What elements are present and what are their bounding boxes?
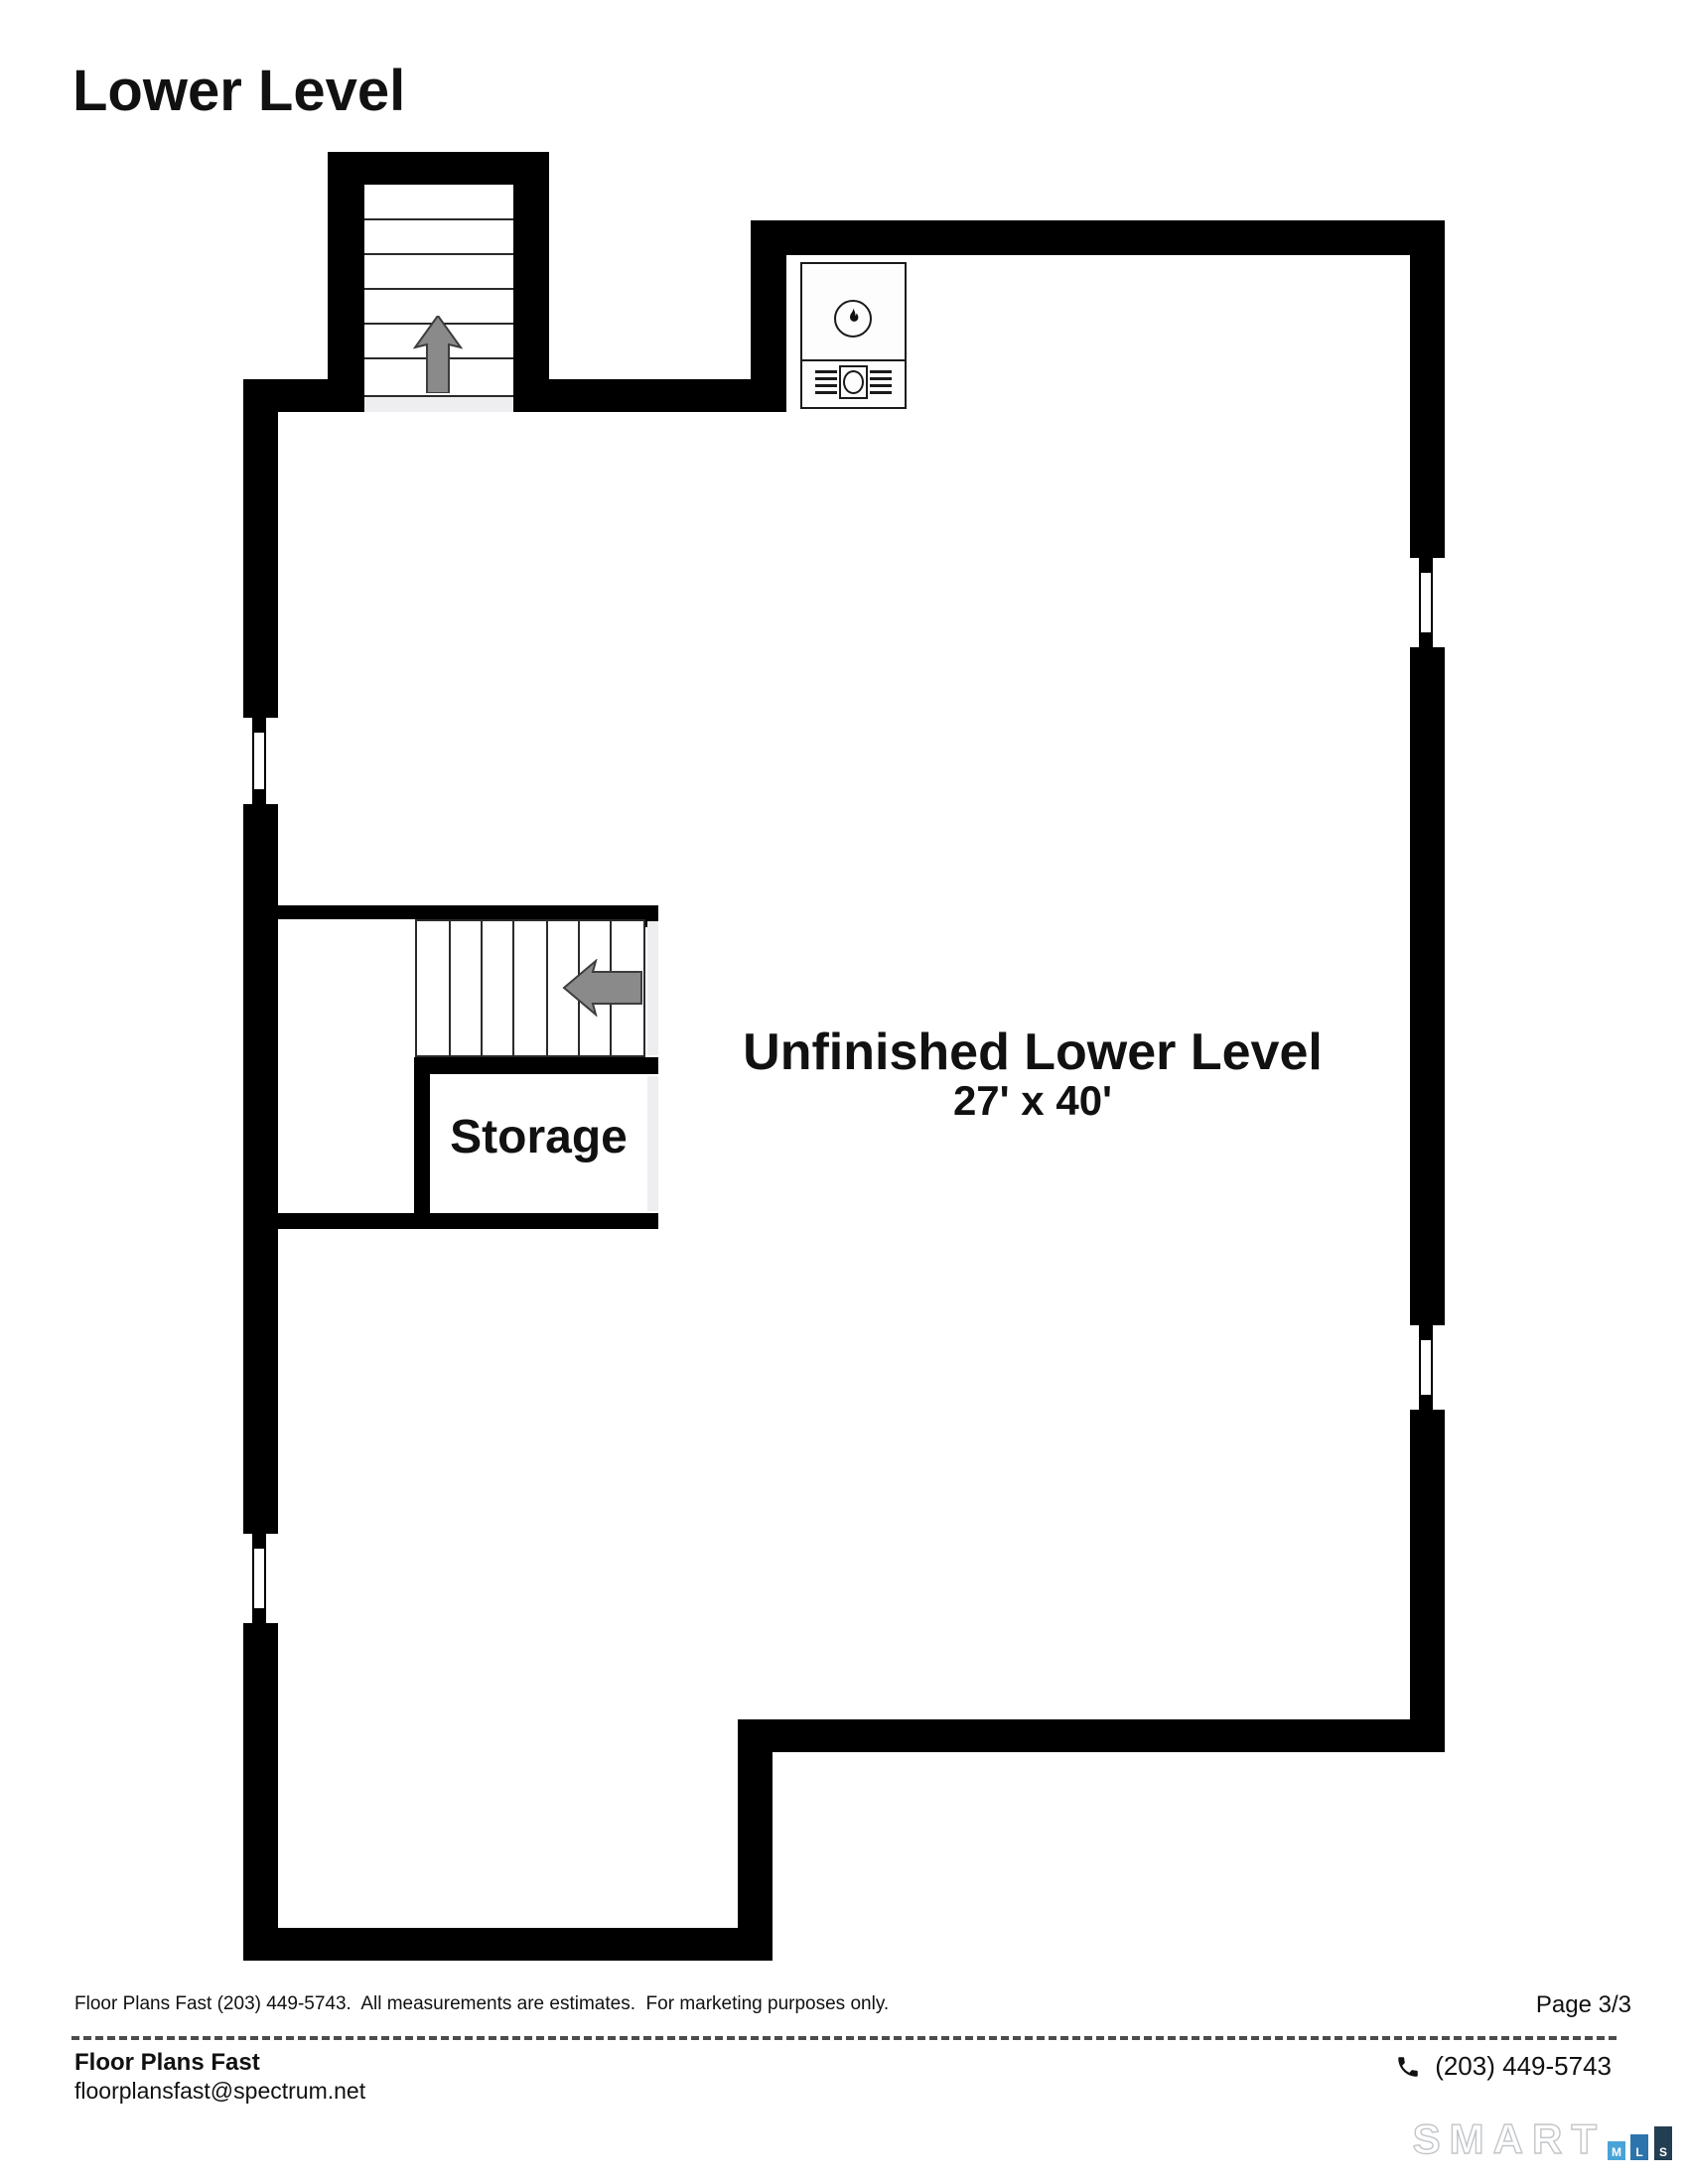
window-right-upper: [1410, 558, 1445, 647]
exterior-wall-top-middle: [513, 379, 786, 412]
footer-divider: [71, 2036, 1617, 2040]
main-room-dimensions: 27' x 40': [735, 1079, 1331, 1123]
footer-phone-number: (203) 449-5743: [1435, 2051, 1612, 2082]
window-frame-nub: [252, 1608, 266, 1623]
exterior-wall-bottom-left: [243, 1928, 773, 1961]
window-frame-nub: [252, 718, 266, 733]
stairs-door-opening: [647, 921, 658, 1055]
exterior-wall-right: [1410, 220, 1445, 1752]
furnace-vent-line: [870, 391, 892, 394]
furnace-divider-line: [802, 359, 905, 361]
furnace-fan-box: [839, 365, 868, 399]
main-room-name: Unfinished Lower Level: [735, 1025, 1331, 1079]
footer-phone: (203) 449-5743: [1395, 2051, 1612, 2082]
interior-wall-bottom: [243, 1213, 658, 1229]
window-frame-nub: [252, 789, 266, 804]
gas-burner-icon: [834, 300, 872, 338]
window-frame-nub: [1419, 632, 1433, 647]
smart-mls-logo: SMART M L S: [1413, 2118, 1672, 2160]
phone-icon: [1395, 2054, 1421, 2080]
stairwell-door-opening: [364, 397, 513, 412]
stair-tread-line: [364, 218, 513, 220]
page-number: Page 3/3: [1536, 1991, 1631, 2019]
page-title: Lower Level: [72, 58, 405, 124]
furnace-vent-line: [815, 370, 837, 373]
exterior-wall-step-down: [738, 1719, 773, 1961]
furnace-vent-line: [815, 377, 837, 380]
left-arrow-icon: [562, 959, 643, 1017]
main-room-label: Unfinished Lower Level 27' x 40': [735, 1025, 1331, 1123]
window-frame-nub: [252, 1534, 266, 1549]
footer-disclaimer: Floor Plans Fast (203) 449-5743. All mea…: [74, 1993, 889, 2015]
stair-tread-line: [512, 921, 514, 1055]
window-right-lower: [1410, 1325, 1445, 1410]
mls-block-l: L: [1630, 2134, 1648, 2160]
window-frame-nub: [1419, 558, 1433, 573]
stair-tread-line: [364, 253, 513, 255]
flame-icon: [844, 307, 862, 331]
mls-block-s: S: [1654, 2126, 1672, 2160]
interior-wall-storage-left: [414, 1057, 430, 1229]
stair-tread-line: [364, 288, 513, 290]
stairwell-wall-left: [328, 152, 364, 412]
exterior-wall-left: [243, 379, 278, 1961]
interior-wall-below-stairs: [414, 1057, 658, 1074]
furnace-fan-oval: [843, 370, 864, 394]
exterior-wall-top-right: [751, 220, 1445, 255]
furnace-vent-line: [870, 370, 892, 373]
window-frame-nub: [1419, 1325, 1433, 1340]
stair-tread-line: [481, 921, 483, 1055]
window-left-lower: [243, 1534, 278, 1623]
furnace-vent-line: [870, 377, 892, 380]
up-arrow-icon: [413, 316, 463, 393]
floor-plan-page: Lower Level: [0, 0, 1688, 2184]
mls-block-m: M: [1608, 2141, 1625, 2160]
smart-wordmark: SMART: [1413, 2118, 1606, 2160]
stairwell-wall-right: [513, 152, 549, 412]
footer-company-name: Floor Plans Fast: [74, 2049, 260, 2077]
storage-room-label: Storage: [430, 1110, 647, 1164]
window-left-upper: [243, 718, 278, 804]
stair-tread-line: [449, 921, 451, 1055]
footer-email: floorplansfast@spectrum.net: [74, 2078, 365, 2105]
interior-wall-top: [276, 905, 658, 919]
furnace-vent-line: [815, 384, 837, 387]
stair-tread-line: [546, 921, 548, 1055]
storage-door-opening: [647, 1076, 658, 1211]
window-frame-nub: [1419, 1395, 1433, 1410]
furnace-vent-line: [870, 384, 892, 387]
exterior-wall-bottom-right: [738, 1719, 1445, 1752]
furnace-vent-line: [815, 391, 837, 394]
furnace-icon: [800, 262, 907, 409]
